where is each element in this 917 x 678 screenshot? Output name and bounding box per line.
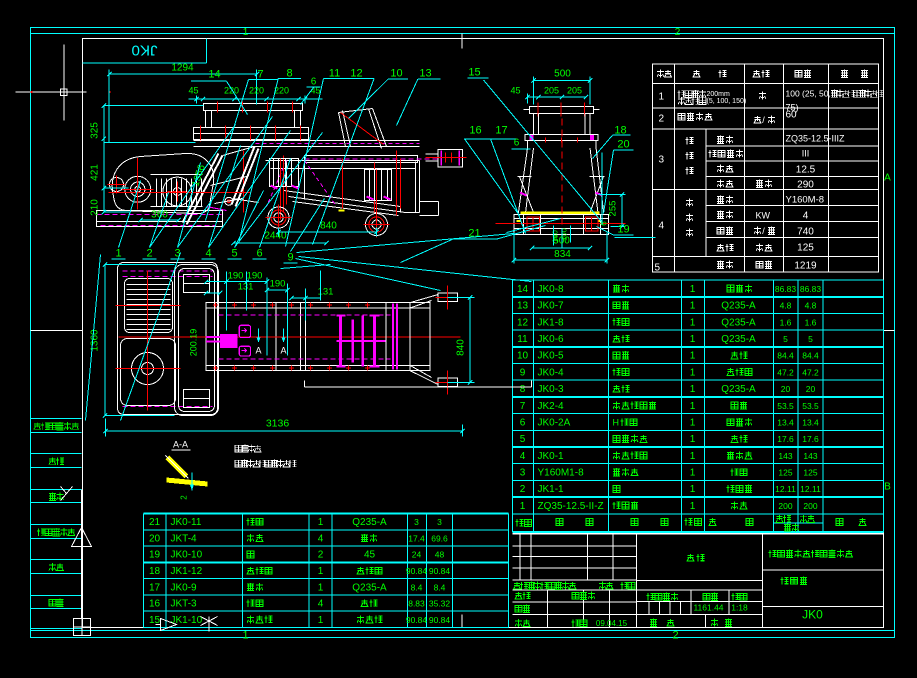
svg-text:12: 12 xyxy=(517,317,529,328)
svg-text:1: 1 xyxy=(115,248,121,260)
svg-text:125: 125 xyxy=(803,468,817,478)
svg-text:47.2: 47.2 xyxy=(777,367,794,377)
svg-text:47.2: 47.2 xyxy=(802,367,819,377)
svg-text:17.4: 17.4 xyxy=(408,533,425,543)
svg-text:90.84: 90.84 xyxy=(429,615,451,625)
svg-text:19: 19 xyxy=(149,550,161,561)
svg-text:JK0-7: JK0-7 xyxy=(538,301,565,312)
svg-text:H: H xyxy=(613,417,620,427)
svg-text:9: 9 xyxy=(520,367,526,378)
svg-text:JK0-1: JK0-1 xyxy=(538,451,565,462)
svg-text:4: 4 xyxy=(803,211,809,222)
svg-text:A-A: A-A xyxy=(173,440,188,450)
svg-text:JK1-8: JK1-8 xyxy=(538,317,565,328)
svg-text:(5, 100, 150): (5, 100, 150) xyxy=(707,98,747,105)
svg-text:5: 5 xyxy=(231,248,237,260)
svg-text:17: 17 xyxy=(495,125,507,137)
svg-text:Q235-A: Q235-A xyxy=(721,301,756,312)
svg-text:840: 840 xyxy=(320,221,337,232)
svg-text:6: 6 xyxy=(520,417,526,428)
svg-text:200mm: 200mm xyxy=(707,91,731,98)
svg-text:JK0-2A: JK0-2A xyxy=(538,417,571,428)
svg-text:11: 11 xyxy=(517,334,528,345)
svg-text:69.6: 69.6 xyxy=(431,533,448,543)
svg-text:16: 16 xyxy=(149,599,161,610)
svg-text:35.32: 35.32 xyxy=(429,599,451,609)
svg-text:2: 2 xyxy=(659,114,665,125)
svg-text:13: 13 xyxy=(517,301,529,312)
svg-text:12: 12 xyxy=(350,68,362,80)
svg-text:9: 9 xyxy=(287,252,293,264)
svg-text:16: 16 xyxy=(469,125,481,137)
svg-text:Q235-A: Q235-A xyxy=(721,334,756,345)
svg-text:III: III xyxy=(802,149,810,159)
svg-text:2: 2 xyxy=(146,248,152,260)
svg-text:8.4: 8.4 xyxy=(434,582,446,592)
svg-text:JK0: JK0 xyxy=(132,42,158,59)
svg-text:19: 19 xyxy=(617,224,629,236)
svg-text:JK2-4: JK2-4 xyxy=(538,401,565,412)
svg-text:1:18: 1:18 xyxy=(731,603,748,613)
svg-text:190: 190 xyxy=(270,279,286,290)
svg-text:45: 45 xyxy=(364,550,376,561)
svg-text:A: A xyxy=(255,346,261,356)
svg-text:8: 8 xyxy=(286,68,292,80)
svg-text:220: 220 xyxy=(249,86,264,96)
svg-text:1: 1 xyxy=(690,351,696,362)
svg-text:1: 1 xyxy=(318,582,324,593)
svg-text:84.4: 84.4 xyxy=(777,351,794,361)
svg-text:20: 20 xyxy=(806,384,816,394)
svg-text:1: 1 xyxy=(690,417,696,428)
svg-text:1.6: 1.6 xyxy=(805,317,817,327)
svg-text:Q235-A: Q235-A xyxy=(721,384,756,395)
svg-text:21: 21 xyxy=(149,517,161,528)
svg-text:12.11: 12.11 xyxy=(800,484,821,494)
svg-text:1: 1 xyxy=(690,484,696,495)
svg-text:1: 1 xyxy=(690,334,696,345)
svg-text:290: 290 xyxy=(797,180,814,191)
svg-text:14: 14 xyxy=(517,284,529,295)
svg-text:1: 1 xyxy=(243,27,249,38)
svg-text:2: 2 xyxy=(672,630,678,642)
svg-text:90.84: 90.84 xyxy=(406,615,428,625)
svg-text:B: B xyxy=(884,482,891,493)
svg-text:Q235-A: Q235-A xyxy=(352,582,387,593)
svg-text:12.11: 12.11 xyxy=(775,484,796,494)
svg-text:53.5: 53.5 xyxy=(802,401,819,411)
svg-text:JK0-8: JK0-8 xyxy=(538,284,565,295)
svg-text:1.6: 1.6 xyxy=(780,317,792,327)
svg-text:53.5: 53.5 xyxy=(777,401,794,411)
svg-text:17: 17 xyxy=(149,582,161,593)
svg-text:JK0: JK0 xyxy=(802,608,823,622)
svg-text:1: 1 xyxy=(520,501,526,512)
svg-text:1360: 1360 xyxy=(90,329,101,352)
svg-text:840: 840 xyxy=(456,339,467,356)
svg-text:8.83: 8.83 xyxy=(408,599,425,609)
svg-text:1: 1 xyxy=(690,367,696,378)
svg-text:11: 11 xyxy=(329,68,340,80)
svg-text:200: 200 xyxy=(778,501,792,511)
svg-text:1: 1 xyxy=(659,92,665,103)
svg-text:JK0-3: JK0-3 xyxy=(538,384,565,395)
svg-text:200.19: 200.19 xyxy=(189,329,199,357)
svg-text:Q235-A: Q235-A xyxy=(352,517,387,528)
svg-text:86.83: 86.83 xyxy=(800,284,822,294)
svg-text:4: 4 xyxy=(659,221,665,232)
svg-text:7: 7 xyxy=(520,401,526,412)
svg-text:1: 1 xyxy=(690,468,696,479)
svg-text:JK1-12: JK1-12 xyxy=(171,566,203,577)
svg-text:10: 10 xyxy=(517,351,529,362)
svg-text:255: 255 xyxy=(608,201,619,217)
svg-text:740: 740 xyxy=(797,227,814,238)
svg-text:500: 500 xyxy=(554,69,571,80)
svg-text:JKT-3: JKT-3 xyxy=(171,599,198,610)
svg-text:1: 1 xyxy=(318,566,324,577)
svg-text:131: 131 xyxy=(318,287,334,298)
svg-text:A: A xyxy=(280,346,286,356)
svg-text:6: 6 xyxy=(514,138,520,149)
svg-text:ZQ35-12.5-IIIZ: ZQ35-12.5-IIIZ xyxy=(786,134,846,144)
svg-text:1: 1 xyxy=(690,384,696,395)
svg-text:ZQ35-12.5-II-Z: ZQ35-12.5-II-Z xyxy=(538,501,604,512)
svg-text:1161.44: 1161.44 xyxy=(693,603,723,613)
svg-text:84.4: 84.4 xyxy=(802,351,819,361)
svg-text:13.4: 13.4 xyxy=(802,417,819,427)
svg-text:5: 5 xyxy=(783,334,788,344)
svg-text:1: 1 xyxy=(690,284,696,295)
svg-text:4: 4 xyxy=(520,451,526,462)
svg-text:220: 220 xyxy=(224,86,239,96)
svg-text:4.8: 4.8 xyxy=(805,301,817,311)
svg-text:4.8: 4.8 xyxy=(780,301,792,311)
svg-text:14: 14 xyxy=(208,69,220,81)
svg-text:13: 13 xyxy=(419,68,431,80)
svg-text:143: 143 xyxy=(803,451,817,461)
svg-text:4: 4 xyxy=(318,599,324,610)
svg-text:10: 10 xyxy=(390,68,402,80)
svg-text:90.84: 90.84 xyxy=(429,566,451,576)
svg-text:1: 1 xyxy=(318,517,324,528)
svg-text:1: 1 xyxy=(690,401,696,412)
svg-text:421: 421 xyxy=(90,164,101,181)
svg-text:1: 1 xyxy=(242,630,248,642)
svg-text:A: A xyxy=(884,173,891,184)
svg-text:1: 1 xyxy=(690,317,696,328)
svg-text:Y160M1-8: Y160M1-8 xyxy=(538,468,585,479)
svg-text:834: 834 xyxy=(554,249,571,260)
svg-text:13.4: 13.4 xyxy=(777,417,794,427)
svg-text:15: 15 xyxy=(468,67,480,79)
svg-text:4: 4 xyxy=(205,248,211,260)
svg-text:45: 45 xyxy=(510,86,520,96)
svg-text:JK0-6: JK0-6 xyxy=(538,334,565,345)
svg-text:1: 1 xyxy=(318,615,324,626)
svg-text:1: 1 xyxy=(690,434,696,445)
svg-text:5: 5 xyxy=(655,263,661,274)
svg-text:125: 125 xyxy=(797,243,814,254)
svg-text:JK0-9: JK0-9 xyxy=(171,582,198,593)
svg-text:5: 5 xyxy=(520,434,526,445)
svg-text:210: 210 xyxy=(90,199,101,216)
svg-text:190: 190 xyxy=(228,271,244,282)
svg-text:48: 48 xyxy=(435,550,445,560)
svg-text:1: 1 xyxy=(690,451,696,462)
svg-text:6: 6 xyxy=(256,248,262,260)
svg-text:JK1-1: JK1-1 xyxy=(538,484,565,495)
svg-text:2: 2 xyxy=(520,484,526,495)
svg-text:8: 8 xyxy=(520,384,526,395)
svg-text:JK0-11: JK0-11 xyxy=(171,517,202,528)
svg-text:90.84: 90.84 xyxy=(406,566,428,576)
svg-text:6: 6 xyxy=(311,77,317,88)
svg-text:20: 20 xyxy=(781,384,791,394)
svg-text:3: 3 xyxy=(659,155,665,166)
svg-text:17.6: 17.6 xyxy=(802,434,819,444)
svg-text:45: 45 xyxy=(188,86,198,96)
svg-text:7: 7 xyxy=(257,69,263,81)
svg-text:20: 20 xyxy=(617,139,629,151)
svg-text:JK0-10: JK0-10 xyxy=(171,550,203,561)
svg-text:Q235-A: Q235-A xyxy=(721,317,756,328)
svg-text:2: 2 xyxy=(675,27,681,38)
svg-text:1: 1 xyxy=(690,301,696,312)
svg-text:3: 3 xyxy=(414,517,419,527)
svg-text:1219: 1219 xyxy=(794,261,817,272)
svg-text:1294: 1294 xyxy=(171,63,194,74)
svg-text:18: 18 xyxy=(149,566,161,577)
svg-text:3: 3 xyxy=(437,517,442,527)
svg-text:JKT-4: JKT-4 xyxy=(171,533,198,544)
svg-text:325: 325 xyxy=(90,122,101,139)
svg-text:JK0-4: JK0-4 xyxy=(538,367,565,378)
svg-text:20: 20 xyxy=(149,533,161,544)
svg-text:205: 205 xyxy=(567,86,582,96)
svg-text:3136: 3136 xyxy=(266,418,290,430)
svg-text:143: 143 xyxy=(778,451,792,461)
svg-text:60: 60 xyxy=(786,110,798,121)
svg-text:500: 500 xyxy=(553,236,570,247)
svg-text:1: 1 xyxy=(690,501,696,512)
svg-text:8.4: 8.4 xyxy=(411,582,423,592)
svg-text:131: 131 xyxy=(238,282,254,293)
svg-text:17.6: 17.6 xyxy=(777,434,794,444)
svg-text:KW: KW xyxy=(756,211,771,221)
svg-text:12.5: 12.5 xyxy=(796,165,816,176)
svg-text:09.04.15: 09.04.15 xyxy=(596,619,628,628)
svg-text:2: 2 xyxy=(180,495,189,500)
svg-text:4: 4 xyxy=(318,533,324,544)
svg-text:205: 205 xyxy=(544,86,559,96)
svg-text:86.83: 86.83 xyxy=(775,284,797,294)
svg-text:200: 200 xyxy=(803,501,817,511)
svg-text:24: 24 xyxy=(412,550,422,560)
svg-text:100 (25, 50,: 100 (25, 50, xyxy=(786,89,831,99)
svg-text:JK0-5: JK0-5 xyxy=(538,351,565,362)
svg-text:Y160M-8: Y160M-8 xyxy=(786,195,825,206)
svg-text:5: 5 xyxy=(808,334,813,344)
svg-text:3: 3 xyxy=(520,468,526,479)
svg-text:2: 2 xyxy=(318,550,324,561)
svg-text:125: 125 xyxy=(778,468,792,478)
